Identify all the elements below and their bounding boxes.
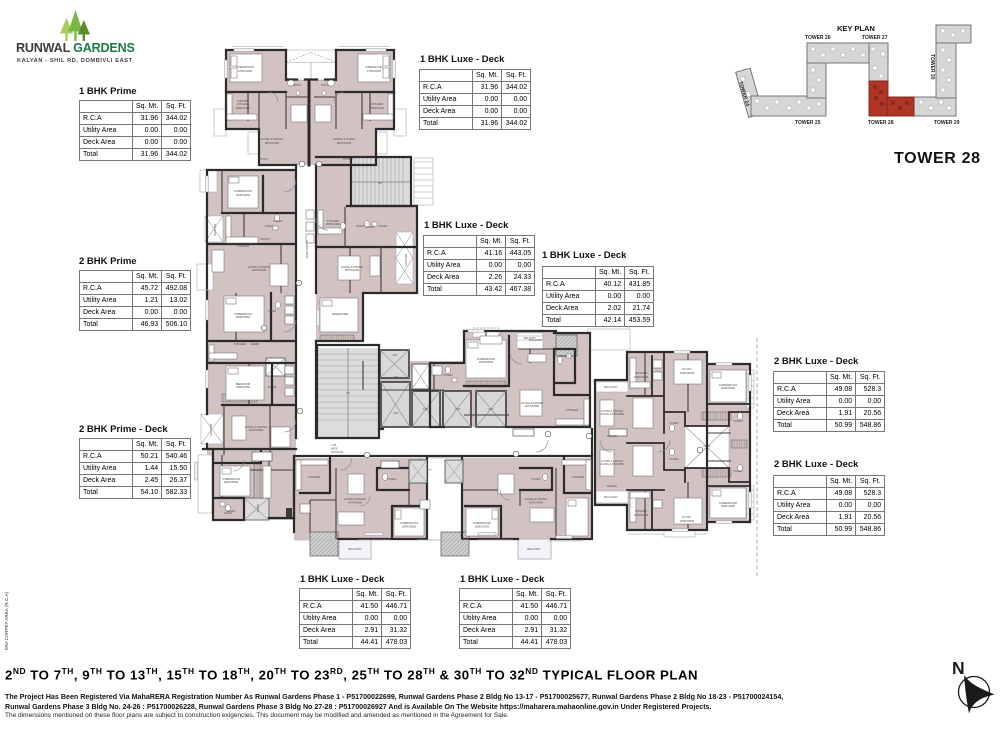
svg-text:PASSAGE: PASSAGE — [331, 450, 343, 454]
svg-text:SITOUT: SITOUT — [343, 157, 353, 161]
svg-text:STUDY: STUDY — [682, 367, 692, 371]
svg-text:KITCHEN: KITCHEN — [237, 244, 249, 248]
svg-text:M BEDROOM: M BEDROOM — [400, 521, 418, 525]
svg-text:BALCONY: BALCONY — [213, 224, 216, 236]
svg-text:1.98: 1.98 — [331, 443, 337, 447]
svg-text:KITCHEN: KITCHEN — [327, 219, 339, 223]
svg-text:LIVING & DINING: LIVING & DINING — [245, 425, 267, 429]
svg-text:TOILET: TOILET — [365, 225, 375, 229]
svg-text:2750X3050: 2750X3050 — [238, 69, 253, 73]
svg-text:2600X3050: 2600X3050 — [236, 193, 251, 197]
svg-text:SITOUT: SITOUT — [258, 157, 268, 161]
svg-text:LIVING & DINING: LIVING & DINING — [248, 265, 270, 269]
svg-text:TOILET: TOILET — [224, 512, 233, 515]
svg-text:2600X3050: 2600X3050 — [475, 525, 490, 529]
svg-text:TOILET: TOILET — [268, 386, 277, 389]
svg-text:TOILET: TOILET — [268, 310, 277, 313]
svg-text:LIVING & DINING: LIVING & DINING — [525, 497, 547, 501]
svg-text:STUDY: STUDY — [682, 515, 692, 519]
svg-text:LIVING & DINING: LIVING & DINING — [601, 409, 623, 413]
svg-text:TOILET: TOILET — [559, 354, 569, 358]
svg-text:TOILET: TOILET — [356, 225, 365, 228]
svg-text:2050X1900: 2050X1900 — [634, 513, 649, 517]
svg-text:M BEDROOM: M BEDROOM — [473, 521, 491, 525]
svg-text:M BEDROOM: M BEDROOM — [477, 357, 495, 361]
svg-text:LIVING & DINING: LIVING & DINING — [521, 401, 543, 405]
svg-text:LIVING & DINING: LIVING & DINING — [601, 459, 623, 463]
svg-text:M BEDROOM: M BEDROOM — [234, 189, 252, 193]
svg-text:LIFT: LIFT — [488, 408, 494, 411]
svg-text:BALCONY: BALCONY — [604, 385, 618, 389]
svg-text:KITCHEN: KITCHEN — [308, 475, 320, 479]
svg-text:2050X1900: 2050X1900 — [370, 106, 385, 110]
svg-text:2750X3050: 2750X3050 — [367, 69, 382, 73]
svg-text:DINING: DINING — [607, 434, 617, 438]
svg-text:KITCHEN: KITCHEN — [566, 408, 578, 412]
svg-text:2050X1900: 2050X1900 — [634, 375, 649, 379]
svg-text:BEDROOM: BEDROOM — [236, 382, 251, 386]
svg-text:2870X4195: 2870X4195 — [337, 141, 352, 145]
svg-text:WARD: WARD — [251, 342, 259, 346]
svg-text:UP: UP — [346, 392, 350, 395]
svg-text:TOILET: TOILET — [733, 419, 743, 423]
svg-text:LIFT: LIFT — [455, 408, 461, 411]
svg-text:M BEDROOM: M BEDROOM — [719, 501, 737, 505]
svg-text:KITCHEN: KITCHEN — [234, 342, 246, 346]
svg-text:TOWER WIDE: TOWER WIDE — [305, 240, 309, 259]
svg-text:KITCHEN: KITCHEN — [635, 371, 647, 375]
svg-text:LIFT: LIFT — [392, 354, 398, 357]
svg-text:TOILET: TOILET — [669, 421, 679, 425]
svg-text:TOILET: TOILET — [443, 373, 453, 377]
svg-text:M BEDROOM: M BEDROOM — [234, 312, 252, 316]
svg-text:2870X4195: 2870X4195 — [265, 141, 280, 145]
svg-text:4270X3050: 4270X3050 — [529, 501, 544, 505]
svg-text:WARD: WARD — [256, 504, 259, 512]
svg-text:2600X3050: 2600X3050 — [402, 525, 417, 529]
svg-text:LIVING & DINING: LIVING & DINING — [341, 265, 363, 269]
svg-text:BALCONY: BALCONY — [209, 424, 212, 436]
svg-text:WIDE: WIDE — [331, 447, 338, 451]
svg-text:WARDROBE: WARDROBE — [332, 312, 349, 316]
svg-text:TOILET: TOILET — [531, 477, 541, 481]
svg-text:TOILET: TOILET — [273, 219, 283, 223]
svg-text:M BEDROOM: M BEDROOM — [719, 383, 737, 387]
svg-text:LIFT: LIFT — [393, 412, 399, 415]
svg-text:BALCONY: BALCONY — [404, 254, 407, 266]
svg-text:KITCHEN: KITCHEN — [238, 100, 249, 103]
svg-text:KITCHEN: KITCHEN — [635, 509, 647, 513]
svg-text:BATH: BATH — [321, 83, 328, 87]
svg-text:BALCONY: BALCONY — [348, 547, 362, 551]
svg-text:SITOUT: SITOUT — [260, 237, 270, 241]
svg-text:KITCHEN: KITCHEN — [572, 475, 584, 479]
svg-text:TOILET: TOILET — [669, 457, 679, 461]
svg-text:LIFT: LIFT — [423, 408, 429, 411]
svg-text:DECK: DECK — [704, 445, 711, 448]
svg-text:BATH: BATH — [293, 83, 300, 87]
svg-text:BALCONY: BALCONY — [527, 547, 541, 551]
svg-text:TOILET: TOILET — [265, 225, 274, 228]
svg-text:BALCONY: BALCONY — [524, 337, 536, 340]
svg-text:LIFT: LIFT — [393, 376, 399, 379]
svg-text:4270X3050: 4270X3050 — [348, 501, 363, 505]
svg-text:TOILET: TOILET — [379, 225, 388, 228]
svg-text:2050X1900: 2050X1900 — [236, 106, 251, 110]
svg-text:BALCONY: BALCONY — [604, 495, 618, 499]
svg-text:M BEDROOM: M BEDROOM — [222, 477, 240, 481]
svg-text:2050X2600: 2050X2600 — [680, 519, 695, 523]
svg-text:LIVING & DINING: LIVING & DINING — [344, 497, 366, 501]
svg-text:TOILET: TOILET — [733, 469, 743, 473]
svg-text:TOILET: TOILET — [387, 477, 397, 481]
svg-text:2050X2600: 2050X2600 — [680, 371, 695, 375]
svg-text:UP: UP — [378, 182, 382, 185]
svg-text:DINING: DINING — [607, 484, 617, 488]
